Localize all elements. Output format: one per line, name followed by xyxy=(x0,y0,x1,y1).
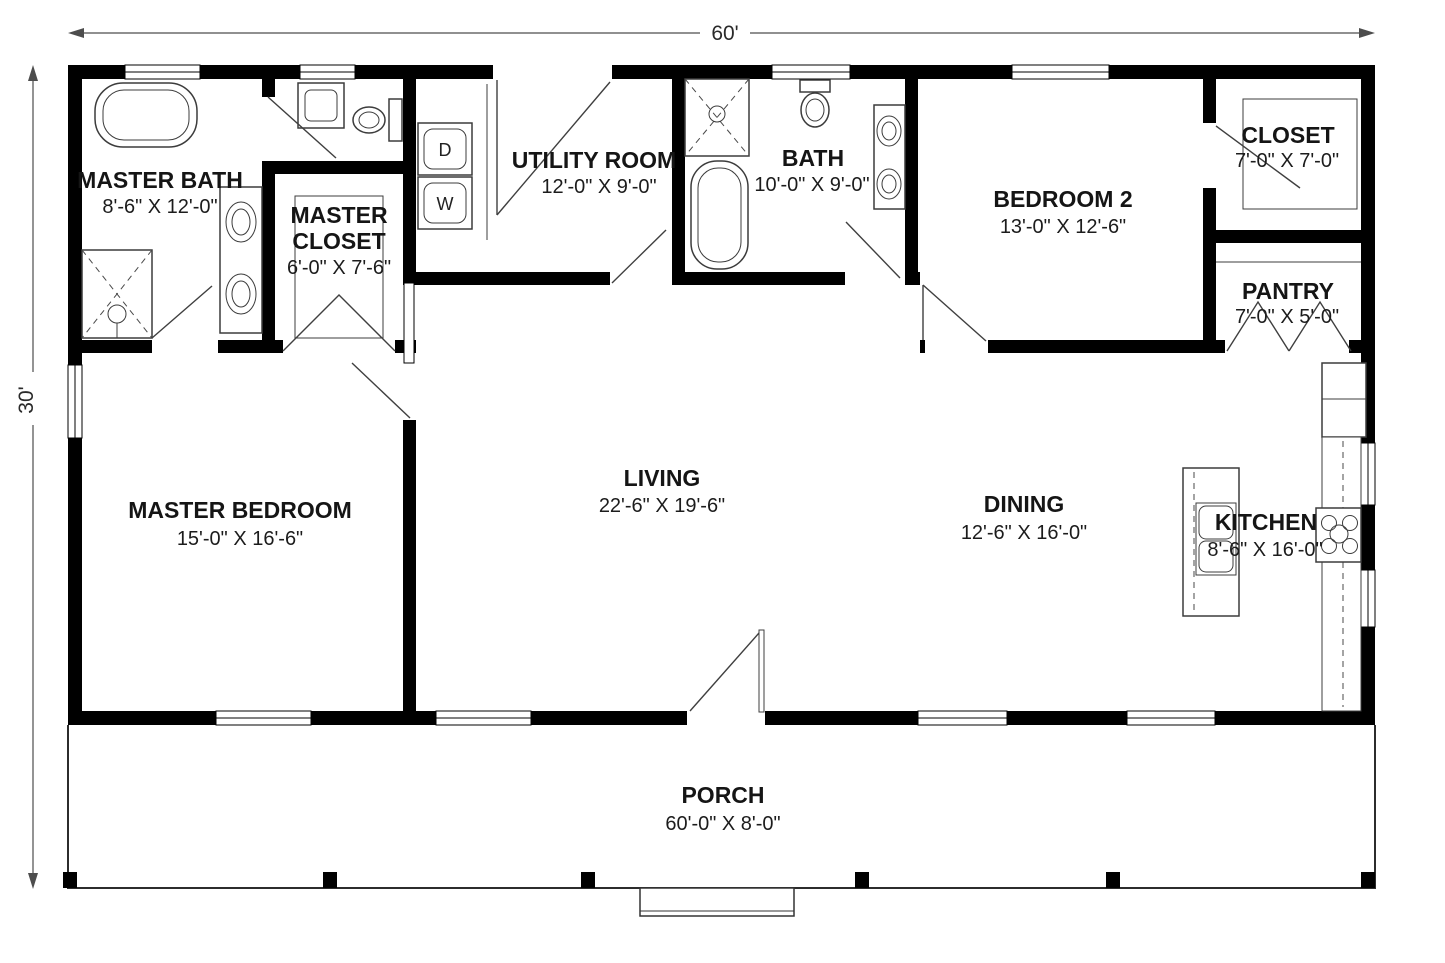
window xyxy=(1012,65,1109,79)
label-utility: UTILITY ROOM 12'-0" X 9'-0" xyxy=(512,147,676,198)
porch-post xyxy=(1106,872,1120,888)
window xyxy=(1361,443,1375,505)
wall-bath-bedroom2 xyxy=(905,65,918,285)
window xyxy=(125,65,200,79)
pantry-dims: 7'-0" X 5'-0" xyxy=(1235,306,1339,328)
dryer-label: D xyxy=(439,140,452,160)
bath-dims: 10'-0" X 9'-0" xyxy=(754,174,869,196)
dryer: D xyxy=(418,123,472,175)
label-master-closet: MASTER CLOSET 6'-0" X 7'-6" xyxy=(287,202,391,279)
wall-masterbath-bottom-1 xyxy=(68,340,152,353)
left-arrow-icon xyxy=(68,28,84,38)
window xyxy=(216,711,311,725)
window xyxy=(772,65,850,79)
master-bedroom-name: MASTER BEDROOM xyxy=(128,497,352,523)
right-arrow-icon xyxy=(1359,28,1375,38)
label-pantry: PANTRY 7'-0" X 5'-0" xyxy=(1235,278,1339,328)
pantry-name: PANTRY xyxy=(1242,278,1334,304)
porch-post xyxy=(855,872,869,888)
wall-bedroom2-bottom-2 xyxy=(988,340,1225,353)
master-bath-name: MASTER BATH xyxy=(77,167,243,193)
front-door-gap xyxy=(687,710,765,726)
floor-plan-drawing: 60' 30' xyxy=(0,0,1445,963)
washer: W xyxy=(418,177,472,229)
label-master-bedroom: MASTER BEDROOM 15'-0" X 16'-6" xyxy=(128,497,352,550)
wall-masterbath-bottom-2 xyxy=(218,340,283,353)
hall-cased-opening xyxy=(404,283,414,363)
shower xyxy=(685,79,749,156)
closet-dims: 7'-0" X 7'-0" xyxy=(1235,150,1339,172)
stove xyxy=(1316,508,1361,562)
master-bedroom-dims: 15'-0" X 16'-6" xyxy=(177,528,303,550)
front-door-swing xyxy=(690,633,759,711)
wall-bedroom2-bottom-1 xyxy=(920,340,925,353)
master-closet-name-1: MASTER xyxy=(290,202,388,228)
bedroom2-door-swing xyxy=(923,285,986,341)
porch-name: PORCH xyxy=(681,782,764,808)
label-bath: BATH 10'-0" X 9'-0" xyxy=(754,145,869,196)
bedroom2-name: BEDROOM 2 xyxy=(993,186,1132,212)
label-closet: CLOSET 7'-0" X 7'-0" xyxy=(1235,122,1339,172)
utility-door-gap xyxy=(493,64,612,80)
wall-masterbath-stub xyxy=(262,65,275,97)
toilet xyxy=(800,80,830,127)
kitchen-dims: 8'-6" X 16'-0" xyxy=(1207,539,1322,561)
porch-steps xyxy=(640,888,794,916)
wall-bath-bottom-1 xyxy=(672,272,845,285)
left-dimension-line: 30' xyxy=(15,65,38,889)
bathtub xyxy=(95,83,197,147)
top-dimension-line: 60' xyxy=(68,22,1375,45)
down-arrow-icon xyxy=(28,873,38,889)
window xyxy=(1127,711,1215,725)
master-bedroom-door xyxy=(352,363,410,418)
refrigerator xyxy=(1322,363,1366,437)
wall-bedroom2-closet-lower xyxy=(1203,188,1216,353)
dining-name: DINING xyxy=(984,491,1065,517)
toilet xyxy=(353,99,402,141)
bath-door xyxy=(846,222,900,278)
bedroom2-dims: 13'-0" X 12'-6" xyxy=(1000,216,1126,238)
label-master-bath: MASTER BATH 8'-6" X 12'-0" xyxy=(77,167,243,218)
double-vanity xyxy=(220,187,262,333)
shower xyxy=(82,250,152,338)
overall-width-label: 60' xyxy=(711,22,738,45)
window xyxy=(300,65,355,79)
closet-name: CLOSET xyxy=(1241,122,1334,148)
wall-bedroom2-closet-upper xyxy=(1203,65,1216,123)
window xyxy=(68,365,82,438)
porch-post xyxy=(581,872,595,888)
label-dining: DINING 12'-6" X 16'-0" xyxy=(961,491,1087,544)
window xyxy=(1361,570,1375,627)
utility-name: UTILITY ROOM xyxy=(512,147,676,173)
front-door-leaf xyxy=(759,630,764,712)
doors xyxy=(152,80,1351,712)
overall-depth-label: 30' xyxy=(15,386,38,413)
wall-pantry-bottom-end xyxy=(1349,340,1375,353)
porch-post xyxy=(323,872,337,888)
washer-label: W xyxy=(437,194,454,214)
porch-post xyxy=(63,872,77,888)
wall-utility-bottom xyxy=(403,272,610,285)
utility-hall-door xyxy=(612,230,666,283)
living-dims: 22'-6" X 19'-6" xyxy=(599,495,725,517)
master-bath-door xyxy=(152,286,212,338)
wall-utility-bath xyxy=(672,65,685,285)
porch-dims: 60'-0" X 8'-0" xyxy=(665,813,780,835)
label-bedroom2: BEDROOM 2 13'-0" X 12'-6" xyxy=(993,186,1132,238)
porch-posts xyxy=(63,872,1375,888)
master-bath-dims: 8'-6" X 12'-0" xyxy=(102,196,217,218)
wall-nook-closet xyxy=(275,161,416,174)
bathtub xyxy=(691,161,748,269)
wall-master-bedroom xyxy=(403,420,416,711)
up-arrow-icon xyxy=(28,65,38,81)
porch-post xyxy=(1361,872,1375,888)
double-vanity xyxy=(874,105,905,209)
sink xyxy=(298,83,344,128)
bath-name: BATH xyxy=(782,145,844,171)
wall-masterbath-closet xyxy=(262,161,275,353)
label-porch: PORCH 60'-0" X 8'-0" xyxy=(665,782,780,835)
label-living: LIVING 22'-6" X 19'-6" xyxy=(599,465,725,517)
kitchen-name: KITCHEN xyxy=(1215,509,1317,535)
master-closet-dims: 6'-0" X 7'-6" xyxy=(287,257,391,279)
floor-plan-page: 60' 30' xyxy=(0,0,1445,963)
utility-dims: 12'-0" X 9'-0" xyxy=(541,176,656,198)
living-name: LIVING xyxy=(624,465,701,491)
kitchen-counter xyxy=(1322,437,1361,711)
wall-bath-bottom-2 xyxy=(905,272,920,285)
dining-dims: 12'-6" X 16'-0" xyxy=(961,522,1087,544)
master-closet-name-2: CLOSET xyxy=(292,228,385,254)
master-closet-doors xyxy=(283,295,395,351)
wall-closet-bottom xyxy=(1203,230,1375,243)
window xyxy=(436,711,531,725)
window xyxy=(918,711,1007,725)
